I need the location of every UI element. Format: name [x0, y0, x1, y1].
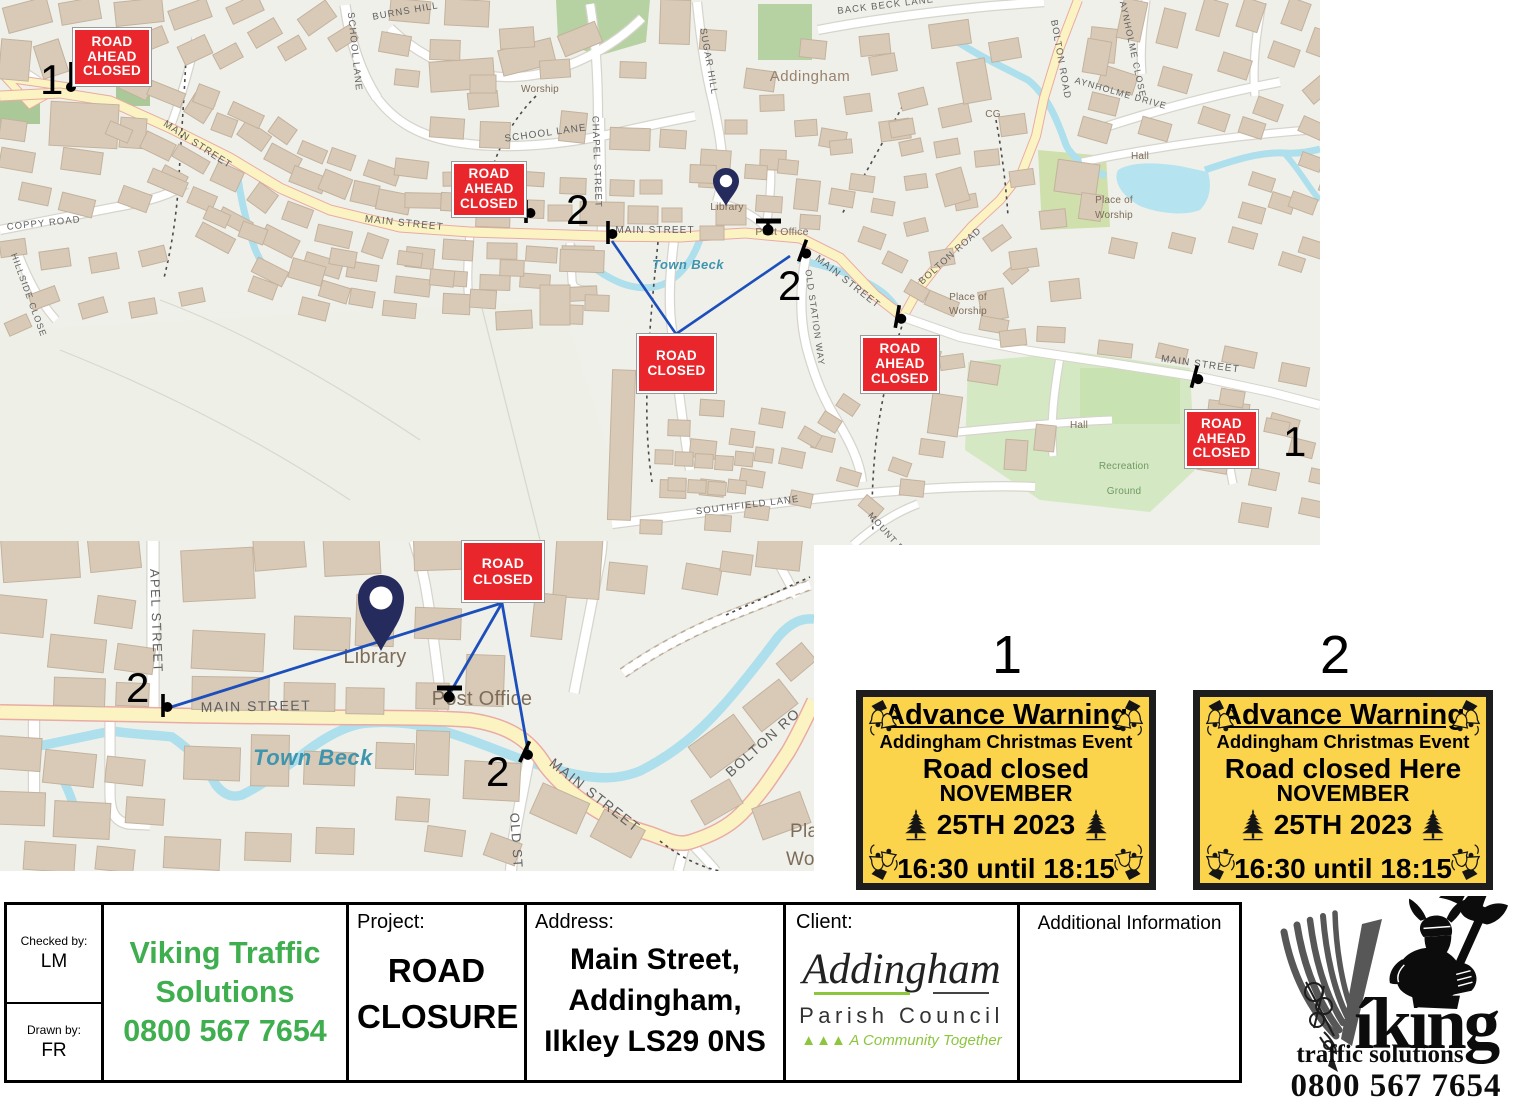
svg-text:Place of: Place of	[949, 292, 987, 303]
svg-text:Town Beck: Town Beck	[652, 257, 724, 272]
svg-text:Place: Place	[790, 821, 814, 842]
svg-text:Worship: Worship	[1095, 210, 1133, 221]
svg-text:MAIN STREET: MAIN STREET	[615, 225, 694, 236]
svg-text:Town Beck: Town Beck	[253, 745, 374, 770]
svg-text:Worship: Worship	[949, 306, 987, 317]
svg-text:Ground: Ground	[1107, 486, 1142, 497]
svg-text:0800 567 7654: 0800 567 7654	[1291, 1068, 1502, 1104]
svg-text:Hall: Hall	[1131, 151, 1149, 162]
svg-text:MAIN STREET: MAIN STREET	[200, 697, 311, 715]
svg-text:Addingham: Addingham	[770, 68, 850, 85]
svg-text:Recreation: Recreation	[1099, 461, 1149, 472]
svg-text:traffic solutions: traffic solutions	[1296, 1041, 1464, 1068]
svg-text:Hall: Hall	[1070, 420, 1088, 431]
svg-text:Place of: Place of	[1095, 195, 1133, 206]
svg-text:Wors: Wors	[786, 849, 814, 870]
svg-text:Worship: Worship	[521, 84, 559, 95]
svg-text:CG: CG	[985, 109, 1000, 120]
